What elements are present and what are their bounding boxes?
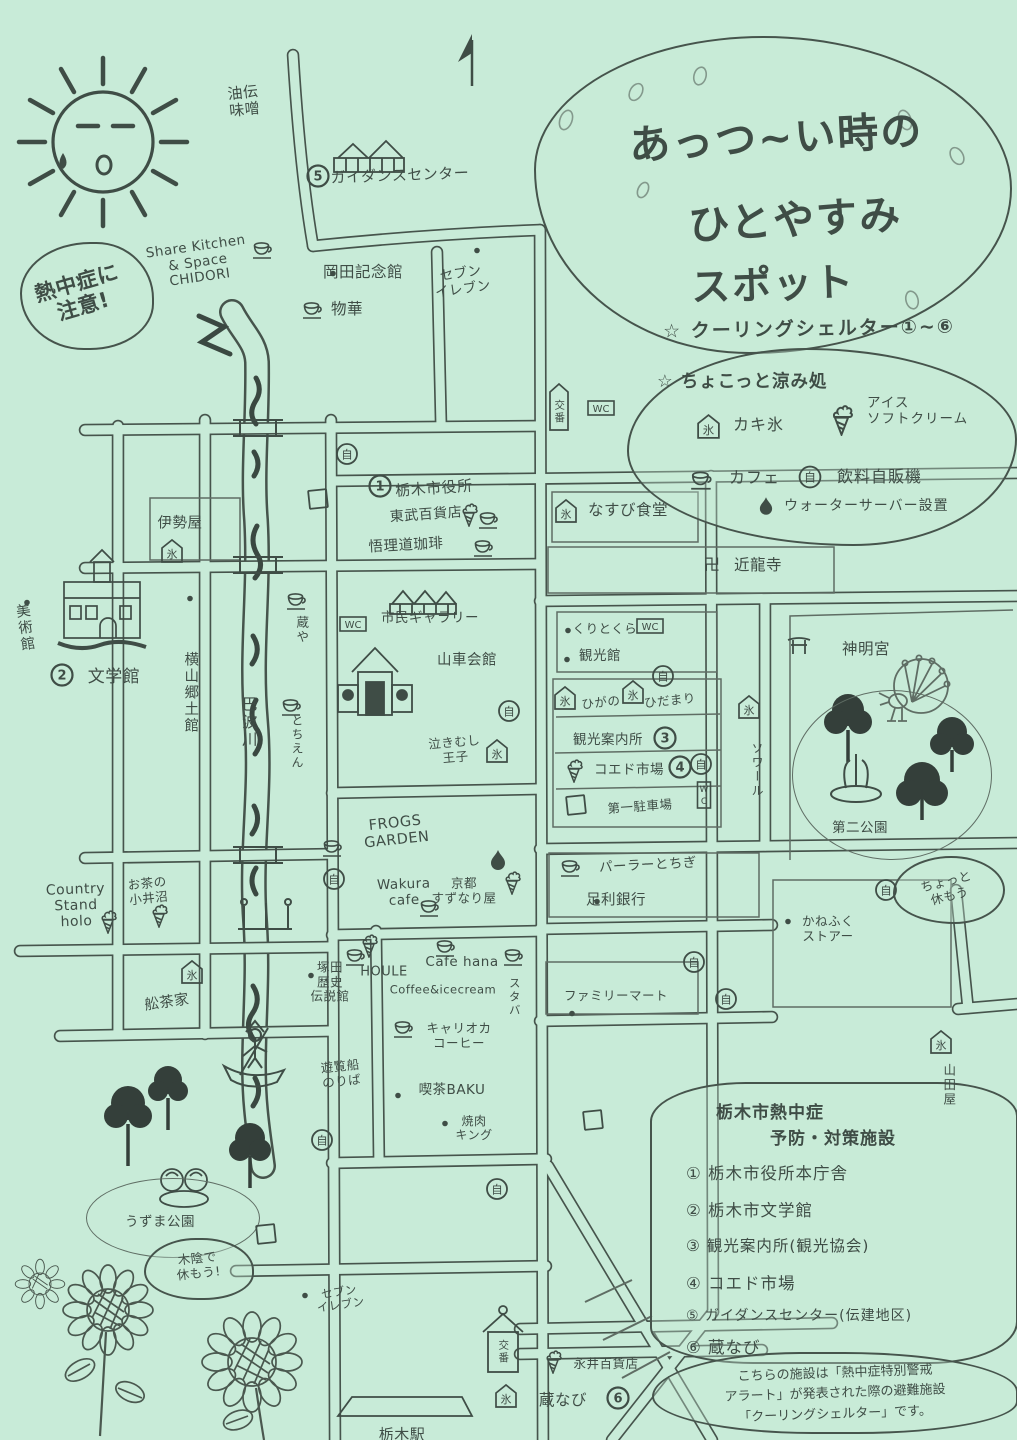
parking-icon-south (580, 1107, 606, 1137)
label-uzuma-park: うずま公園 (125, 1215, 195, 1231)
label-koban-south: 交番 (498, 1340, 509, 1365)
svg-text:WC: WC (593, 404, 610, 415)
shaved-ice-flag-icon-nasubi: 氷 (553, 498, 579, 528)
svg-text:2: 2 (57, 669, 66, 684)
shaved-ice-flag-icon-nakimushi: 氷 (484, 738, 510, 768)
cafe-cup-icon-kuraya (285, 588, 309, 616)
svg-text:自: 自 (695, 758, 707, 772)
label-kuranavi: 蔵なび (539, 1392, 587, 1410)
svg-text:W: W (700, 785, 709, 795)
parking-icon-tobu (305, 486, 331, 516)
label-koedo-ichiba: コエド市場 (594, 763, 664, 779)
label-frogs-garden: FROGS GARDEN (362, 812, 431, 852)
label-kanefuku-store: かねふく ストアー (802, 915, 854, 944)
soft-serve-icon-tsukada (358, 932, 380, 962)
label-kissa-baku: 喫茶BAKU (419, 1083, 486, 1099)
label-daini-koen: 第二公園 (832, 821, 888, 837)
svg-text:自: 自 (491, 1183, 503, 1197)
soft-serve-icon-koedo (563, 757, 585, 787)
cafe-cup-icon (689, 466, 715, 496)
label-tochien: とちえん (291, 714, 303, 770)
shelter-number-icon-shelter-1: 1 (368, 474, 393, 503)
label-staba: スタバ (508, 977, 520, 1018)
location-dot-icon-kanefuku (784, 911, 792, 930)
svg-text:卍: 卍 (704, 555, 720, 574)
police-box-icon-koban-north (546, 382, 572, 436)
vending-machine-icon-daini-koen: 自 (874, 878, 899, 907)
location-dot-icon-kuritokura (564, 620, 572, 639)
label-bukka: 物華 (331, 301, 363, 319)
soft-serve-icon (827, 402, 856, 440)
cafe-cup-icon-chidori (251, 237, 275, 265)
legend-shaved-ice-label: カキ氷 (733, 416, 784, 435)
shelter-number-icon-shelter-3: 3 (653, 726, 678, 755)
label-yamadaya: 山田屋 (942, 1063, 955, 1107)
label-dashi-kaikan: 山車会館 (437, 653, 497, 670)
note-bubble: こちらの施設は「熱中症特別警戒 アラート」が発表された際の避難施設 「クーリング… (652, 1352, 1017, 1434)
toilet-icon-kuritokura: WC (635, 613, 665, 643)
shaved-ice-flag-icon-yamadaya: 氷 (928, 1029, 954, 1059)
location-dot-icon-famima (568, 1003, 576, 1022)
hand-drawn-map-canvas: あっつ~い時の ひとやすみ スポット ☆ クーリングシェルター①~⑥ ☆ ちょこ… (0, 0, 1017, 1440)
label-nasubi-shokudo: なすび食堂 (588, 502, 668, 520)
page-title-line1: あっつ~い時の (627, 96, 924, 171)
vending-machine-icon-frogs: 自 (322, 867, 347, 896)
label-nagai-department: 永井百貨店 (573, 1357, 638, 1372)
toilet-icon-north: WC (586, 395, 616, 425)
cafe-cup-icon-bukka (301, 297, 325, 325)
sun-drawing (19, 58, 187, 226)
title-subtitle: ☆ クーリングシェルター①~⑥ (663, 311, 955, 343)
svg-text:6: 6 (613, 1392, 622, 1407)
label-literature-museum: 文学館 (88, 668, 141, 688)
label-city-gallery: 市民ギャラリー (381, 611, 479, 627)
soft-serve-icon-oinuma (148, 902, 170, 932)
label-kinryuji: 近龍寺 (734, 557, 782, 575)
svg-text:自: 自 (316, 1134, 328, 1148)
svg-text:氷: 氷 (936, 1039, 947, 1052)
legend-cafe-label: カフェ (729, 469, 780, 488)
shaved-ice-flag-icon-higano: 氷 (552, 685, 578, 715)
location-dot-icon-yakiniku (441, 1113, 449, 1132)
shaved-ice-flag-icon-kuranavi: 氷 (493, 1383, 519, 1413)
svg-text:氷: 氷 (187, 969, 198, 982)
soft-serve-icon-nagai (542, 1348, 564, 1378)
svg-text:C: C (701, 797, 707, 807)
facility-list-cloud: 栃木市熱中症 予防・対策施設 ① 栃木市役所本庁舎 ② 栃木市文学館 ③ 観光案… (650, 1082, 1017, 1364)
svg-text:氷: 氷 (703, 423, 715, 437)
shelter-number-icon-shelter-4: 4 (668, 755, 693, 784)
parking-icon-uzuma (253, 1221, 279, 1251)
facility-item-4: ④ コエド市場 (686, 1270, 796, 1294)
legend-header: ☆ ちょこっと涼み処 (657, 372, 828, 393)
label-kanko-annaijo: 観光案内所 (573, 733, 643, 749)
vending-machine-icon-hidamari: 自 (651, 664, 676, 693)
label-carioca-coffee: キャリオカ コーヒー (426, 1022, 491, 1051)
location-dot-icon-seven-north (473, 240, 481, 259)
shelter-number-icon-shelter-6: 6 (606, 1386, 631, 1415)
vending-machine-icon-dashi-kaikan: 自 (497, 699, 522, 728)
legend-water-server-label: ウォーターサーバー設置 (784, 498, 949, 515)
svg-text:自: 自 (503, 705, 515, 719)
shaved-ice-flag-icon-soir: 氷 (736, 694, 762, 724)
facility-heading-line1: 栃木市熱中症 (716, 1098, 824, 1123)
shaved-ice-flag-icon-funachaya: 氷 (179, 959, 205, 989)
svg-text:自: 自 (688, 956, 700, 970)
label-soir: ソワール (751, 742, 763, 798)
toilet-icon-daiichi: WC (691, 780, 717, 814)
svg-text:4: 4 (675, 761, 684, 776)
label-kuraya: 蔵や (295, 616, 308, 645)
station-building (338, 1397, 472, 1416)
location-dot-icon-kankokan (563, 649, 571, 668)
parking-icon-daiichi (563, 792, 589, 822)
facility-item-5: ⑤ ガイダンスセンター(伝建地区) (686, 1305, 912, 1325)
water-server-drop-icon-suzunariya (490, 849, 506, 875)
svg-text:自: 自 (328, 873, 340, 887)
cafe-cup-icon-gorido (472, 535, 496, 563)
svg-text:自: 自 (720, 993, 732, 1007)
shaved-ice-flag-icon: 氷 (695, 413, 722, 444)
facility-item-3: ③ 観光案内所(観光協会) (686, 1234, 869, 1256)
label-yokoyama-kyodokan: 横山郷土館 (183, 652, 198, 735)
svg-text:氷: 氷 (167, 548, 178, 561)
cafe-cup-icon-tochien (280, 694, 304, 722)
location-dot-icon-art-museum (23, 592, 31, 611)
label-family-mart: ファミリーマート (564, 989, 668, 1004)
dashi-kaikan-building (338, 648, 412, 715)
cafe-cup-icon-wakura (418, 895, 442, 923)
svg-text:氷: 氷 (560, 695, 571, 708)
svg-text:WC: WC (345, 620, 362, 631)
shelter-number-icon-shelter-5: 5 (306, 164, 331, 193)
vending-machine-icon-famima-2: 自 (714, 987, 739, 1016)
vending-machine-icon: 自 (797, 464, 823, 494)
cafe-cup-icon-carioca (392, 1016, 416, 1044)
label-uzuma-river: 巴波川 (240, 696, 256, 749)
location-dot-icon-ashikaga (593, 891, 601, 910)
svg-text:WC: WC (642, 622, 659, 633)
vending-machine-icon-famima-1: 自 (682, 950, 707, 979)
soft-serve-icon-holo (97, 908, 119, 938)
legend-vending-label: 飲料自販機 (837, 468, 922, 487)
north-arrow (458, 34, 472, 86)
label-shinmeigu: 神明宮 (842, 641, 890, 659)
cafe-cup-icon-frogs (321, 835, 345, 863)
label-yakiniku-king: 焼肉 キング (455, 1115, 492, 1143)
water-server-drop-icon (759, 496, 773, 520)
soft-serve-icon-tobu (458, 501, 480, 531)
page-title-line3: スポット (690, 251, 856, 313)
shaved-ice-flag-icon-iseya: 氷 (159, 538, 185, 568)
svg-text:氷: 氷 (492, 748, 503, 761)
location-dot-icon-seven-south (301, 1285, 309, 1304)
svg-text:自: 自 (880, 884, 892, 898)
legend-soft-cream-label: アイス ソフトクリーム (867, 396, 968, 428)
svg-text:氷: 氷 (628, 689, 639, 702)
label-kokage-yasumou: 木陰で 休もう! (175, 1249, 222, 1282)
label-aburaden-miso: 油伝 味噌 (227, 83, 261, 121)
label-nakimushi-oji: 泣きむし 王子 (428, 733, 482, 766)
label-pleasure-boat-dock: 遊覧船 のりば (320, 1058, 362, 1091)
label-tochigi-station: 栃木駅 (379, 1426, 426, 1440)
toilet-icon-gallery: WC (338, 611, 368, 641)
svg-text:自: 自 (804, 471, 816, 485)
location-dot-icon-yokoyama (186, 588, 194, 607)
label-coffee-icecream: Coffee&icecream (390, 983, 497, 996)
location-dot-icon-tsukada (307, 965, 315, 984)
label-iseya: 伊勢屋 (158, 516, 203, 533)
svg-text:自: 自 (657, 670, 669, 684)
cafe-cup-icon-staba (502, 944, 526, 972)
svg-text:5: 5 (313, 170, 322, 185)
svg-text:氷: 氷 (561, 508, 572, 521)
label-kuritokura: くりとくら (573, 622, 638, 637)
svg-text:氷: 氷 (501, 1393, 512, 1406)
facility-item-2: ② 栃木市文学館 (686, 1197, 813, 1221)
location-dot-icon-baku (394, 1085, 402, 1104)
shelter-number-icon-shelter-2: 2 (50, 663, 75, 692)
vending-machine-icon-station-north: 自 (485, 1177, 510, 1206)
label-kankokan: 観光館 (579, 649, 621, 665)
cafe-cup-icon-parlor (559, 855, 583, 883)
svg-text:氷: 氷 (744, 704, 755, 717)
daini-koen-outline (792, 690, 992, 860)
cafe-cup-icon-cafe-hana (434, 935, 458, 963)
vending-machine-icon-road-c: 自 (335, 442, 360, 471)
svg-text:1: 1 (375, 480, 384, 495)
facility-heading-line2: 予防・対策施設 (770, 1124, 896, 1149)
vending-machine-icon-uzuma: 自 (310, 1128, 335, 1157)
page-title-line2: ひとやすみ (687, 180, 904, 251)
cafe-cup-icon-tobu (477, 507, 501, 535)
facility-item-1: ① 栃木市役所本庁舎 (686, 1160, 848, 1184)
location-dot-icon-okada (329, 263, 337, 282)
svg-text:3: 3 (660, 732, 669, 747)
svg-text:自: 自 (341, 448, 353, 462)
temple-manji-icon-kinryuji: 卍 (702, 554, 722, 578)
shaved-ice-flag-icon-hidamari: 氷 (620, 679, 646, 709)
shrine-torii-icon-shinmeigu (786, 634, 812, 660)
